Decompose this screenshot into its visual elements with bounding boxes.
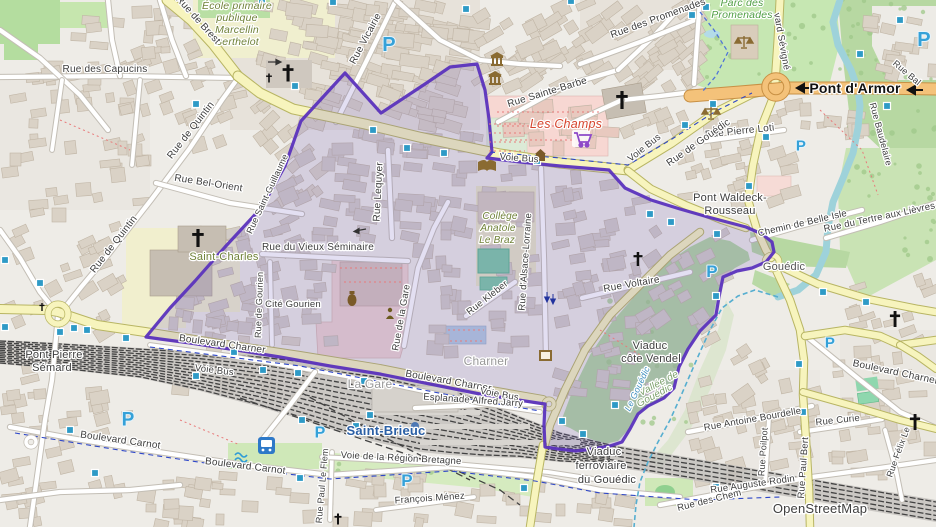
svg-text:Cité Gourien: Cité Gourien [265, 299, 321, 310]
svg-text:P: P [122, 410, 135, 431]
svg-text:Pont Pierre: Pont Pierre [25, 349, 82, 361]
svg-text:Rousseau: Rousseau [704, 205, 755, 217]
svg-text:Viaduc: Viaduc [633, 340, 668, 352]
svg-text:Parc des: Parc des [720, 0, 764, 9]
svg-text:Gouédic: Gouédic [763, 261, 806, 273]
svg-text:Charner: Charner [464, 354, 509, 368]
svg-text:Saint-Charles: Saint-Charles [189, 251, 259, 263]
svg-text:Sémard: Sémard [32, 362, 72, 374]
svg-text:Rue du Vieux Séminaire: Rue du Vieux Séminaire [262, 242, 374, 253]
svg-text:P: P [401, 471, 413, 490]
svg-text:Promenades: Promenades [711, 9, 773, 21]
svg-text:Pont d'Armor: Pont d'Armor [809, 80, 901, 96]
svg-text:côte Vendel: côte Vendel [621, 353, 681, 365]
svg-text:Les Champs: Les Champs [530, 117, 602, 131]
svg-text:La Gare: La Gare [348, 377, 393, 391]
svg-text:du Gouédic: du Gouédic [578, 474, 637, 486]
svg-text:Anatole: Anatole [479, 223, 516, 234]
svg-text:P: P [315, 425, 326, 442]
svg-text:P: P [796, 137, 806, 154]
svg-text:Marcellin: Marcellin [215, 24, 259, 36]
svg-text:ferroviaire: ferroviaire [575, 460, 626, 472]
svg-text:Pont Waldeck-: Pont Waldeck- [693, 192, 767, 204]
svg-text:École primaire: École primaire [202, 0, 272, 12]
svg-text:Rue des Capucins: Rue des Capucins [63, 64, 148, 75]
svg-text:publique: publique [215, 12, 257, 24]
svg-text:Le Braz: Le Braz [479, 235, 515, 246]
svg-text:OpenStreetMap: OpenStreetMap [773, 501, 867, 516]
svg-text:P: P [382, 34, 396, 56]
svg-text:P: P [825, 334, 835, 351]
svg-text:P: P [706, 262, 718, 281]
svg-text:Viaduc: Viaduc [587, 446, 622, 458]
svg-text:Saint-Brieuc: Saint-Brieuc [347, 423, 426, 438]
svg-text:P: P [917, 29, 931, 51]
svg-text:Collège: Collège [482, 211, 518, 222]
